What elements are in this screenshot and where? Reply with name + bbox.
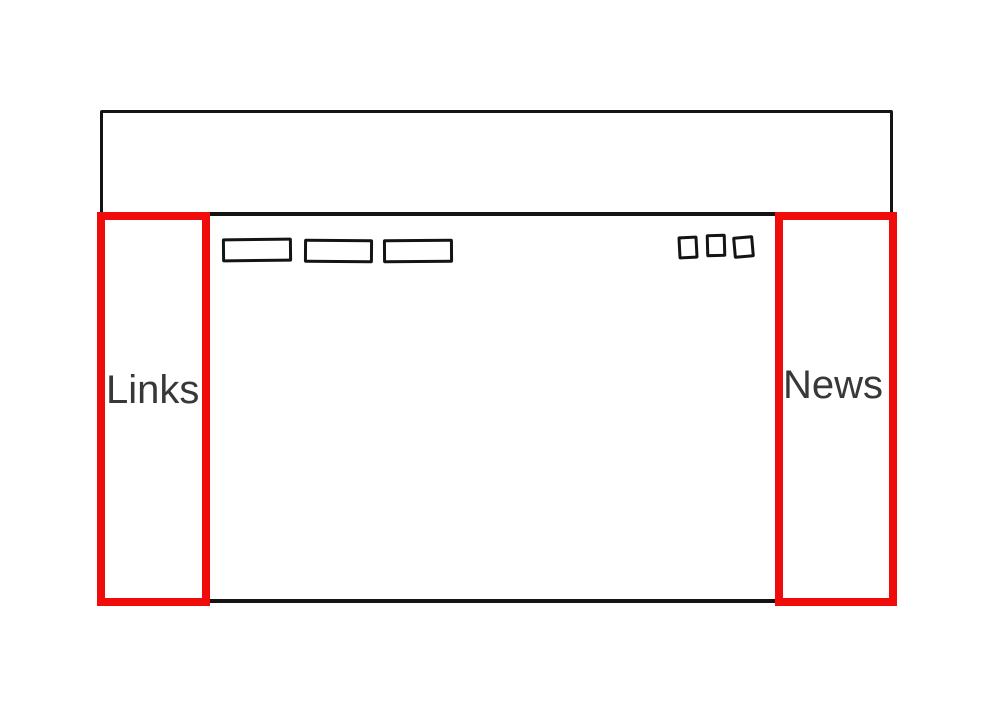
wireframe-sketch: Links News bbox=[0, 0, 1000, 713]
sidebar-right-highlight bbox=[775, 212, 897, 606]
nav-button-placeholder bbox=[222, 238, 292, 263]
nav-button-placeholder bbox=[383, 239, 453, 263]
header-box bbox=[100, 110, 893, 216]
nav-button-placeholder bbox=[304, 239, 373, 263]
square-placeholder bbox=[732, 235, 755, 259]
square-placeholder bbox=[677, 235, 698, 259]
sidebar-right-label: News bbox=[783, 365, 883, 405]
content-bottom-line bbox=[205, 599, 783, 603]
sidebar-left-label: Links bbox=[106, 370, 199, 410]
square-placeholder bbox=[706, 234, 727, 258]
